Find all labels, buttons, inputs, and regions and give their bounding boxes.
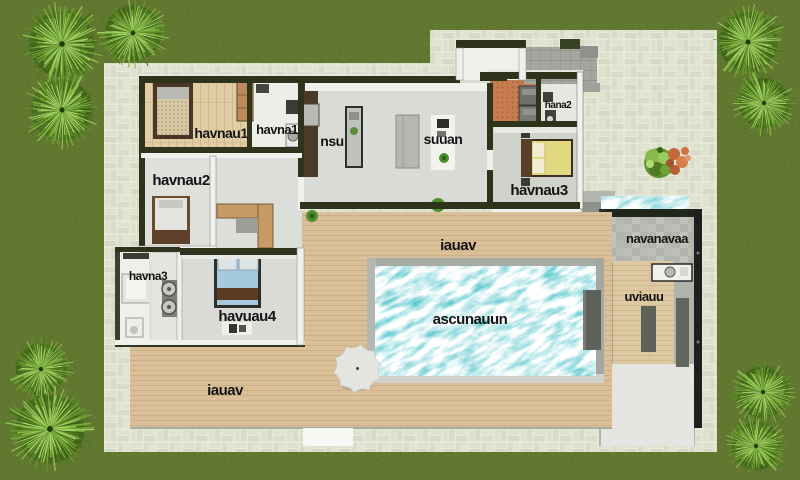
svg-text:havna3: havna3: [129, 269, 168, 283]
svg-text:suuan: suuan: [424, 131, 463, 147]
svg-text:havnau2: havnau2: [152, 172, 210, 189]
svg-text:havnau3: havnau3: [510, 182, 568, 199]
svg-text:nsu: nsu: [320, 133, 343, 149]
svg-text:havnau1: havnau1: [194, 125, 248, 141]
svg-text:uviauu: uviauu: [625, 289, 664, 304]
svg-text:iauav: iauav: [440, 237, 477, 254]
svg-text:navanavaa: navanavaa: [626, 231, 689, 246]
svg-text:havuau4: havuau4: [218, 308, 277, 325]
svg-text:iauav: iauav: [207, 382, 244, 399]
svg-text:havna1: havna1: [256, 122, 298, 137]
svg-text:hana2: hana2: [545, 100, 572, 111]
svg-text:ascunauun: ascunauun: [433, 311, 508, 328]
